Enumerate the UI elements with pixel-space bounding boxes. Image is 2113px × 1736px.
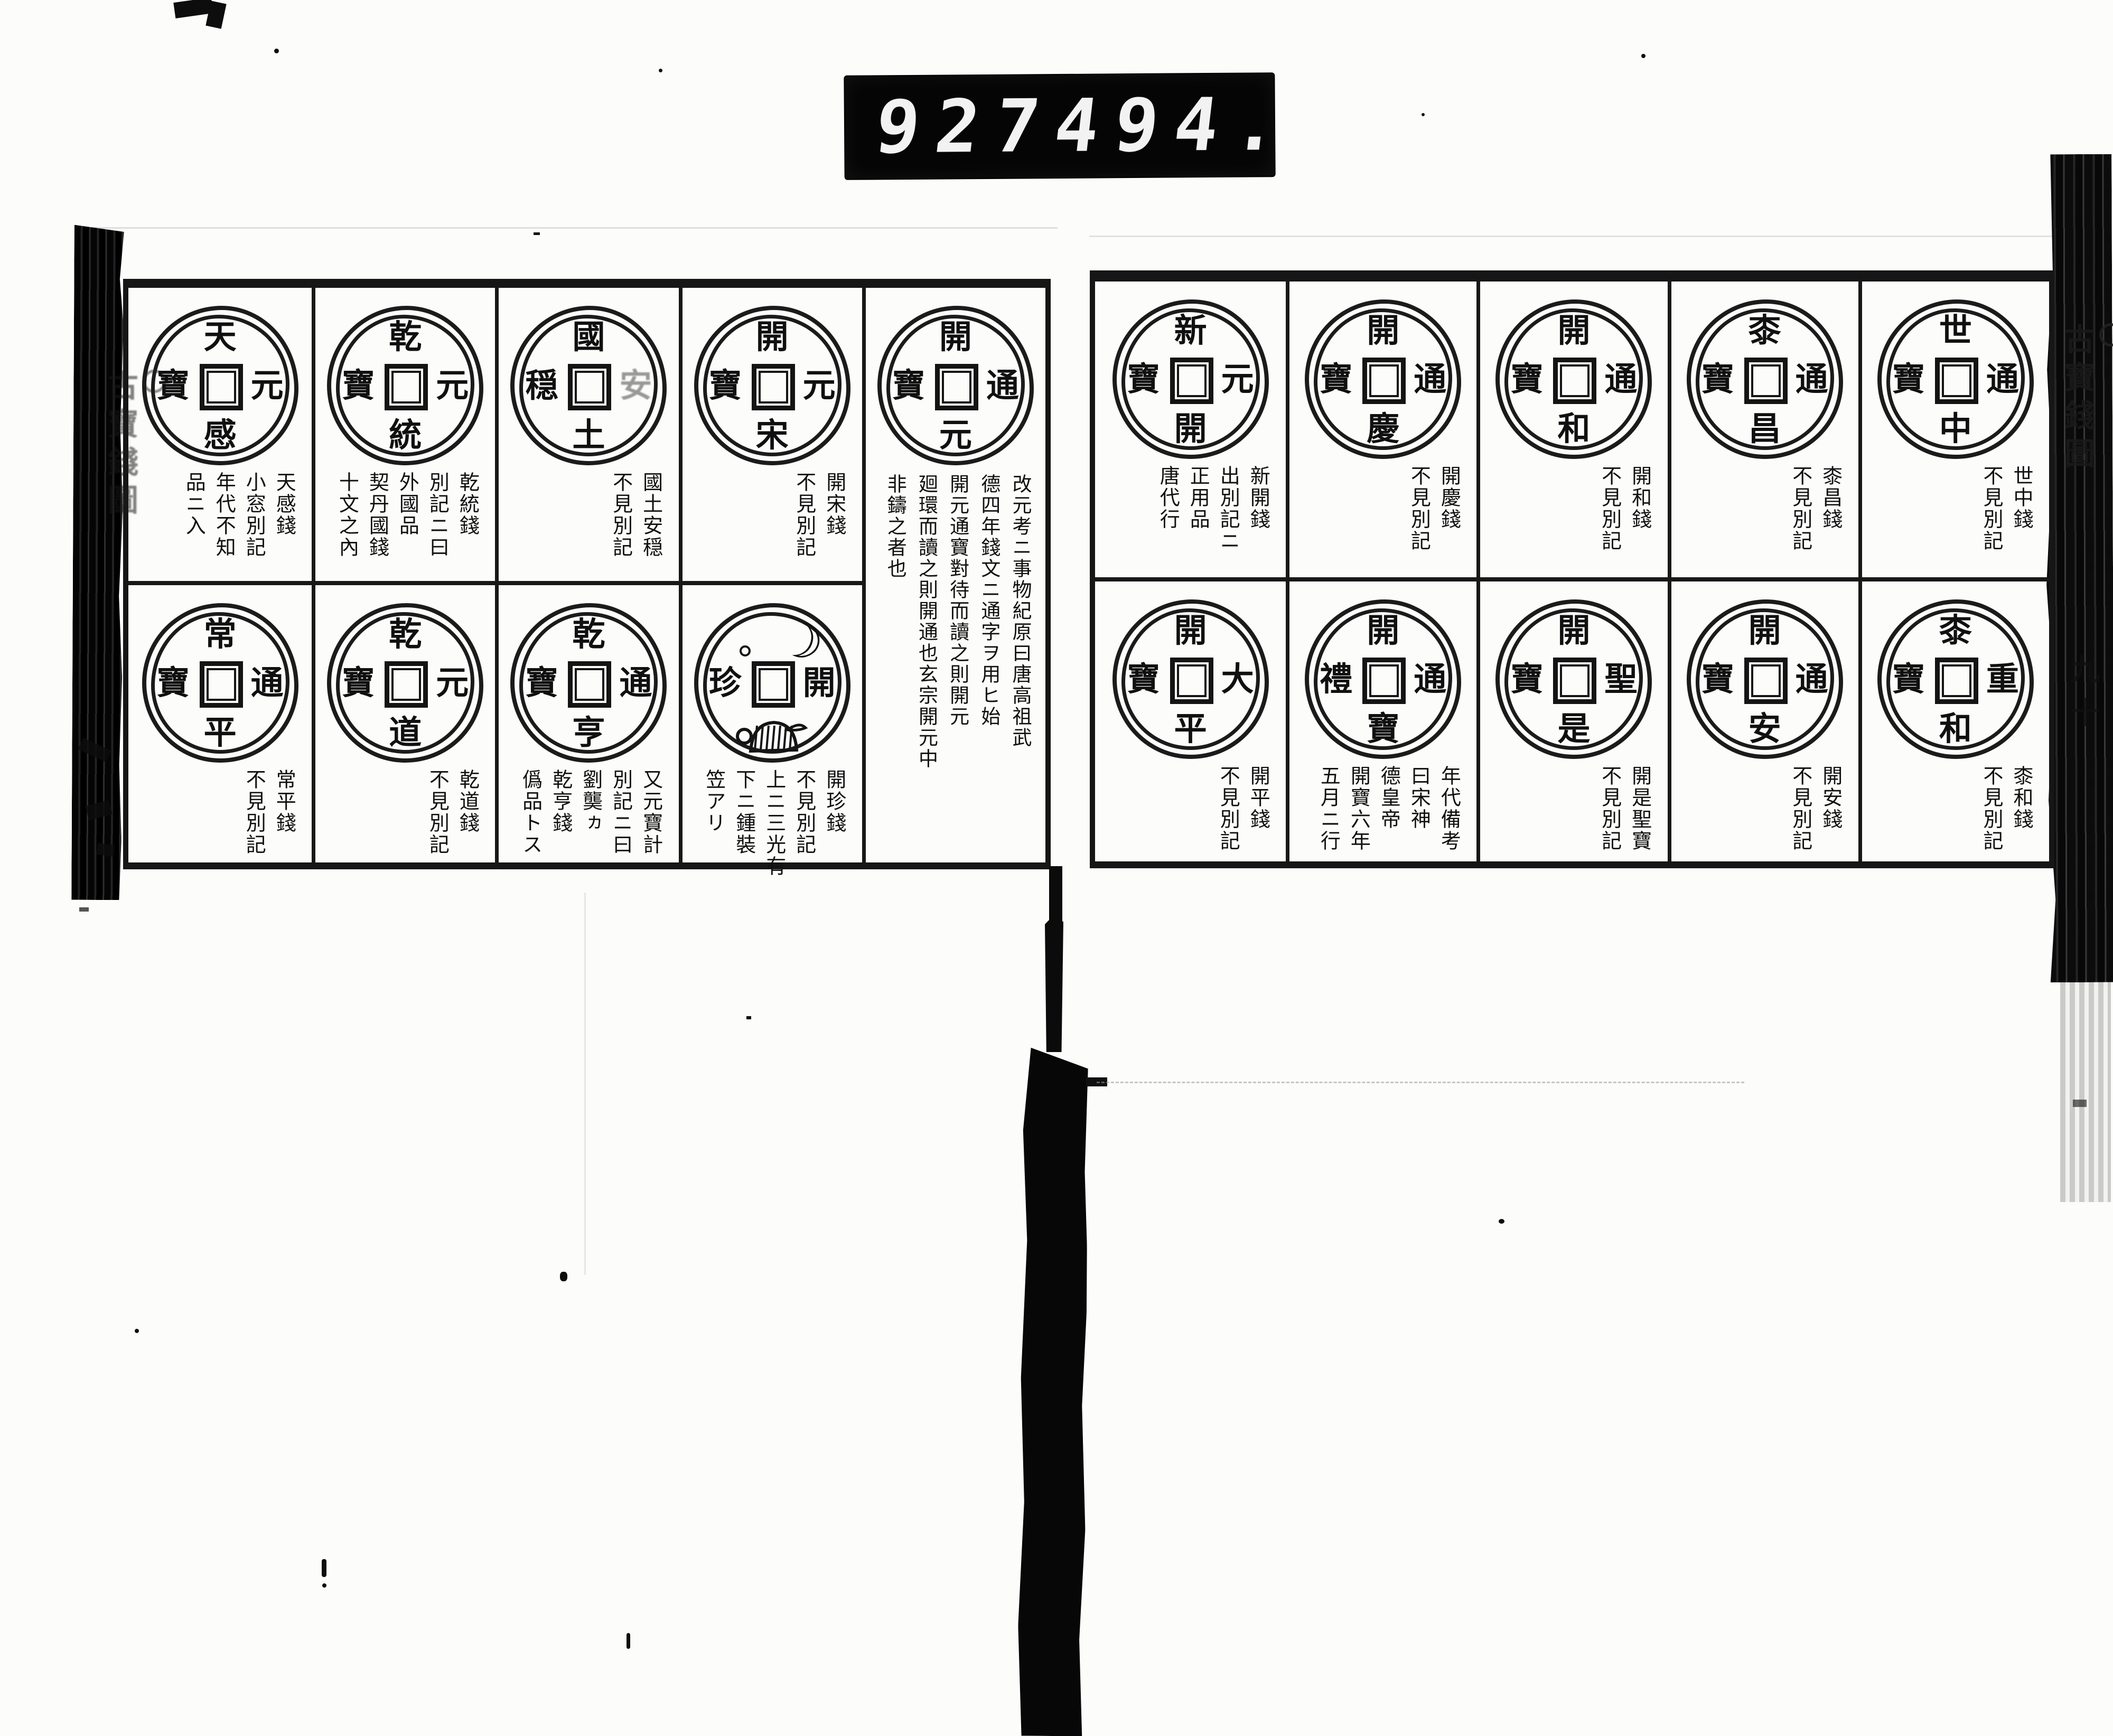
coin-cell: 乾元道寶乾道錢 不見別記 <box>312 581 495 862</box>
coin-square-hole <box>385 661 428 708</box>
coin-illustration: 國安土穏 <box>510 306 667 465</box>
coin-inscription-left: 寶 <box>1320 363 1352 396</box>
coin-illustration: 桼通昌寶 <box>1687 299 1843 459</box>
book-edge-right-fade <box>2060 980 2111 1202</box>
coin-annotation: 乾統錢 別記ニ曰 外國品 契丹國錢 十文之內 <box>332 472 482 586</box>
bell-with-hat-icon <box>733 710 812 754</box>
coin-illustration: 乾元道寶 <box>327 603 483 763</box>
book-edge-right <box>2045 154 2113 982</box>
coin-cell: 世通中寶世中錢 不見別記 <box>1858 281 2049 577</box>
coin-inscription-top: 開 <box>1367 614 1399 647</box>
microfilm-scan-page: 927 494. 古寶錢圖 古寶錢圖 九十 天元感寶天感錢 小窓別記 年代不知 … <box>0 0 2113 1736</box>
coin-cell: 常通平寶常平錢 不見別記 <box>128 581 312 862</box>
coin-inscription-right: 元 <box>436 369 469 402</box>
coin-inscription-left: 寶 <box>157 369 190 402</box>
coin-annotation: 開是聖寶 不見別記 <box>1595 765 1655 879</box>
coin-inscription-bottom: 是 <box>1557 712 1590 745</box>
coin-square-hole <box>1170 658 1213 704</box>
coin-inscription-top: 乾 <box>389 321 422 353</box>
coin-illustration: 乾通亨寶 <box>510 603 667 763</box>
coin-annotation: 開宋錢 不見別記 <box>789 472 849 586</box>
coin-inscription-bottom: 和 <box>1557 412 1590 445</box>
coin-cell: 開通和寶開和錢 不見別記 <box>1476 281 1667 577</box>
star-dot-icon <box>740 645 751 656</box>
coin-inscription-top: 桼 <box>1939 614 1972 647</box>
coin-inscription-bottom: 安 <box>1749 712 1781 745</box>
right-margin-page-number: 九十 <box>2061 654 2104 740</box>
coin-cell: 開大平寶開平錢 不見別記 <box>1095 577 1286 861</box>
coin-inscription-left: 寶 <box>157 667 190 699</box>
coin-square-hole <box>1935 658 1978 704</box>
coin-cell: 開通慶寶開慶錢 不見別記 <box>1286 281 1476 577</box>
coin-inscription-right: 元 <box>251 369 284 402</box>
coin-inscription-right: 重 <box>1986 663 2019 696</box>
coin-inscription-bottom: 元 <box>939 419 972 452</box>
coin-annotation: 開和錢 不見別記 <box>1595 465 1655 579</box>
coin-inscription-bottom: 平 <box>1174 712 1207 745</box>
coin-square-hole <box>200 661 243 708</box>
coin-inscription-left: 寶 <box>1701 663 1734 696</box>
coin-inscription-left: 寶 <box>1892 663 1925 696</box>
coin-cell: 開聖是寶開是聖寶 不見別記 <box>1476 577 1667 861</box>
frame-counter-right: 494. <box>1051 88 1298 163</box>
coin-inscription-top: 桼 <box>1749 314 1781 347</box>
coin-inscription-right: 通 <box>619 667 652 699</box>
coin-inscription-right: 通 <box>1604 363 1637 396</box>
coin-illustration: 開聖是寶 <box>1495 599 1652 759</box>
coin-cell: 開珍☽開珍錢 不見別記 上ニ三光有 下ニ鍾裝 笠アリ <box>679 581 862 862</box>
right-page-coin-table: 新元開寶新開錢 出別記ニ 正用品 唐代行開通慶寶開慶錢 不見別記開通和寶開和錢 … <box>1090 270 2054 868</box>
coin-inscription-right: 通 <box>986 369 1019 402</box>
coin-inscription-top: 開 <box>1557 314 1590 347</box>
coin-inscription-right: 通 <box>1796 363 1828 396</box>
coin-square-hole <box>1170 358 1213 404</box>
coin-illustration: 乾元統寶 <box>327 306 483 465</box>
coin-annotation: 乾道錢 不見別記 <box>422 769 482 883</box>
coin-square-hole <box>1362 358 1406 404</box>
coin-cell: 開通寶禮年代備考 曰宋神 德皇帝 開寶六年 五月ニ行 <box>1286 577 1476 861</box>
coin-inscription-left: 寶 <box>1892 363 1925 396</box>
coin-inscription-top: 新 <box>1174 314 1207 347</box>
coin-inscription-bottom: 亨 <box>572 716 605 749</box>
running-title-text: 古寶錢圖 <box>2059 323 2095 475</box>
coin-illustration: 開珍☽ <box>694 603 850 763</box>
coin-cell: 開元宋寶開宋錢 不見別記 <box>679 288 862 581</box>
coin-inscription-bottom: 寶 <box>1367 712 1399 745</box>
coin-inscription-right: 元 <box>436 667 469 699</box>
coin-inscription-right: 元 <box>1221 363 1254 396</box>
coin-illustration: 常通平寶 <box>142 603 298 763</box>
coin-inscription-right: 聖 <box>1604 663 1637 696</box>
coin-illustration: 開元宋寶 <box>694 306 850 465</box>
coin-inscription-right: 安 <box>619 369 652 402</box>
coin-annotation: 天感錢 小窓別記 年代不知 品ニ入 <box>179 472 299 586</box>
coin-cell: 開通安寶開安錢 不見別記 <box>1668 577 1858 861</box>
coin-inscription-left: 寶 <box>525 667 558 699</box>
coin-inscription-top: 常 <box>204 618 237 651</box>
left-margin-running-title: 古寶錢圖 <box>98 370 166 522</box>
coin-square-hole <box>1553 658 1596 704</box>
coin-inscription-left: 寶 <box>1127 363 1160 396</box>
coin-square-hole <box>1362 658 1406 704</box>
spine-shadow-thin <box>1049 866 1062 925</box>
coin-annotation: 常平錢 不見別記 <box>239 769 299 883</box>
coin-cell: 新元開寶新開錢 出別記ニ 正用品 唐代行 <box>1095 281 1286 577</box>
circle-mark-icon <box>2099 323 2113 346</box>
coin-square-hole <box>1553 358 1596 404</box>
left-page-fold-crease <box>584 893 586 1275</box>
coin-cell: 乾通亨寶又元寶計 別記ニ曰 劉龑ヵ 乾亨錢 僞品トス <box>495 581 678 862</box>
coin-inscription-left: 寶 <box>892 369 925 402</box>
coin-annotation: 改元考ニ事物紀原曰唐高祖武 德四年錢文ニ通字ヲ用ヒ始 開元通寶對待而讀之則開元 … <box>880 474 1036 850</box>
coin-inscription-right: 大 <box>1221 663 1254 696</box>
coin-inscription-bottom: 統 <box>389 419 422 452</box>
coin-square-hole <box>385 364 428 410</box>
coin-inscription-bottom: 慶 <box>1367 412 1399 445</box>
coin-inscription-top: 乾 <box>389 618 422 651</box>
coin-inscription-top: 開 <box>1174 614 1207 647</box>
left-page-top-edge <box>80 227 1058 229</box>
coin-inscription-left: 珍 <box>709 667 742 699</box>
coin-cell: 桼重和寶桼和錢 不見別記 <box>1858 577 2049 861</box>
coin-illustration: 新元開寶 <box>1112 299 1269 459</box>
right-page-bottom-edge <box>1097 1082 1744 1083</box>
coin-inscription-right: 通 <box>1986 363 2019 396</box>
running-title-text: 古寶錢圖 <box>102 370 138 522</box>
coin-inscription-left: 寶 <box>342 667 375 699</box>
coin-cell: 乾元統寶乾統錢 別記ニ曰 外國品 契丹國錢 十文之內 <box>312 288 495 581</box>
coin-annotation: 開安錢 不見別記 <box>1785 765 1846 879</box>
coin-square-hole <box>1744 658 1788 704</box>
coin-inscription-top: 國 <box>572 321 605 353</box>
coin-inscription-left: 寶 <box>1127 663 1160 696</box>
coin-illustration: 開通安寶 <box>1687 599 1843 759</box>
right-margin-running-title: 古寶錢圖 <box>2055 323 2113 475</box>
coin-square-hole <box>1744 358 1788 404</box>
coin-inscription-right: 通 <box>1414 363 1446 396</box>
coin-cell: 開通元寶改元考ニ事物紀原曰唐高祖武 德四年錢文ニ通字ヲ用ヒ始 開元通寶對待而讀之… <box>862 288 1045 862</box>
coin-inscription-top: 開 <box>939 321 972 353</box>
coin-square-hole <box>752 364 795 410</box>
coin-inscription-right: 通 <box>1796 663 1828 696</box>
coin-inscription-left: 寶 <box>1510 663 1543 696</box>
coin-inscription-top: 世 <box>1939 314 1972 347</box>
coin-inscription-top: 開 <box>1749 614 1781 647</box>
coin-annotation: 世中錢 不見別記 <box>1976 465 2036 579</box>
coin-inscription-left: 寶 <box>1701 363 1734 396</box>
coin-illustration: 開通元寶 <box>877 306 1034 465</box>
coin-annotation: 國土安穏 不見別記 <box>606 472 666 586</box>
coin-inscription-bottom: 中 <box>1939 412 1972 445</box>
coin-inscription-bottom: 昌 <box>1749 412 1781 445</box>
coin-illustration: 世通中寶 <box>1877 299 2034 459</box>
coin-illustration: 開通寶禮 <box>1305 599 1461 759</box>
coin-annotation: 年代備考 曰宋神 德皇帝 開寶六年 五月ニ行 <box>1313 765 1464 879</box>
coin-annotation: 開平錢 不見別記 <box>1213 765 1273 879</box>
coin-annotation: 桼昌錢 不見別記 <box>1785 465 1846 579</box>
coin-annotation: 又元寶計 別記ニ曰 劉龑ヵ 乾亨錢 僞品トス <box>516 769 666 883</box>
coin-square-hole <box>568 661 611 708</box>
coin-cell: 國安土穏國土安穏 不見別記 <box>495 288 678 581</box>
coin-inscription-top: 乾 <box>572 618 605 651</box>
coin-square-hole <box>200 364 243 410</box>
coin-square-hole <box>568 364 611 410</box>
coin-annotation: 開慶錢 不見別記 <box>1404 465 1464 579</box>
coin-annotation: 開珍錢 不見別記 上ニ三光有 下ニ鍾裝 笠アリ <box>699 769 849 883</box>
spine-shadow-bar <box>1017 1048 1088 1736</box>
coin-inscription-top: 天 <box>204 321 237 353</box>
coin-illustration: 開通慶寶 <box>1305 299 1461 459</box>
coin-inscription-bottom: 道 <box>389 716 422 749</box>
coin-inscription-bottom: 土 <box>572 419 605 452</box>
left-page-coin-table: 天元感寶天感錢 小窓別記 年代不知 品ニ入乾元統寶乾統錢 別記ニ曰 外國品 契丹… <box>123 279 1051 869</box>
coin-inscription-bottom: 和 <box>1939 712 1972 745</box>
coin-square-hole <box>1935 358 1978 404</box>
coin-inscription-bottom: 平 <box>204 716 237 749</box>
coin-illustration: 桼重和寶 <box>1877 599 2034 759</box>
coin-inscription-right: 通 <box>1414 663 1446 696</box>
coin-cell: 桼通昌寶桼昌錢 不見別記 <box>1668 281 1858 577</box>
coin-inscription-top: 開 <box>1367 314 1399 347</box>
coin-inscription-top: 開 <box>1557 614 1590 647</box>
coin-illustration: 開通和寶 <box>1495 299 1652 459</box>
book-edge-left <box>71 225 124 900</box>
coin-annotation: 桼和錢 不見別記 <box>1976 765 2036 879</box>
coin-inscription-top: 開 <box>756 321 789 353</box>
coin-inscription-left: 穏 <box>525 369 558 402</box>
right-page-top-edge <box>1089 236 2057 237</box>
coin-square-hole <box>935 364 978 410</box>
coin-inscription-bottom: 宋 <box>756 419 789 452</box>
coin-annotation: 新開錢 出別記ニ 正用品 唐代行 <box>1153 465 1273 579</box>
coin-inscription-left: 寶 <box>709 369 742 402</box>
coin-illustration: 開大平寶 <box>1112 599 1269 759</box>
coin-inscription-right: 通 <box>251 667 284 699</box>
frame-counter: 927 494. <box>845 73 1274 179</box>
coin-inscription-bottom: 開 <box>1174 412 1207 445</box>
coin-inscription-bottom: 感 <box>204 419 237 452</box>
coin-square-hole <box>752 661 795 708</box>
coin-inscription-right: 元 <box>803 369 836 402</box>
coin-inscription-left: 寶 <box>342 369 375 402</box>
spine-shadow-mid <box>1045 919 1063 1052</box>
frame-counter-left: 927 <box>872 90 1059 164</box>
coin-inscription-left: 禮 <box>1320 663 1352 696</box>
coin-inscription-left: 寶 <box>1510 363 1543 396</box>
